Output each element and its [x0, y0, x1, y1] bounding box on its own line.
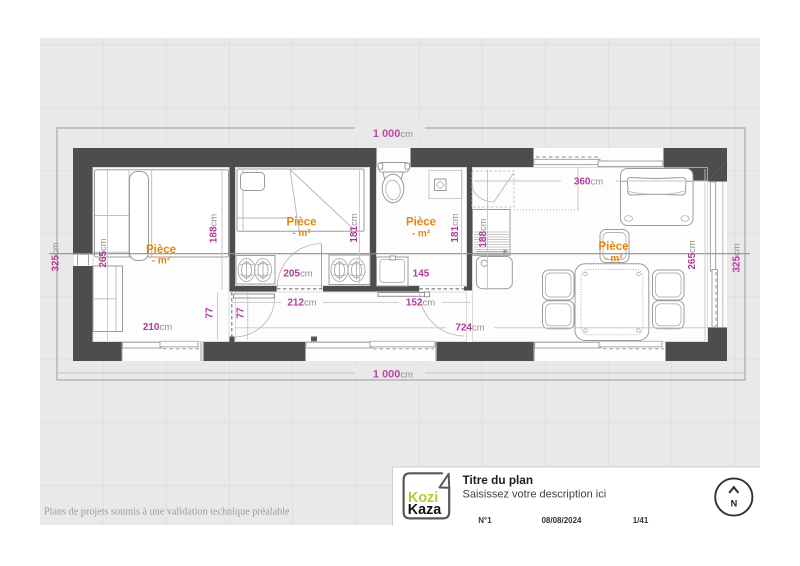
svg-text:- m²: - m² — [412, 229, 431, 240]
svg-text:Titre du plan: Titre du plan — [463, 473, 534, 487]
svg-text:77: 77 — [205, 307, 216, 319]
svg-text:188cm: 188cm — [478, 218, 489, 247]
svg-text:265cm: 265cm — [687, 240, 698, 269]
svg-text:Plans de projets soumis à une: Plans de projets soumis à une validation… — [44, 507, 290, 518]
svg-text:Saisissez votre description ic: Saisissez votre description ici — [463, 489, 607, 501]
svg-text:08/08/2024: 08/08/2024 — [541, 516, 582, 525]
svg-text:Pièce: Pièce — [406, 217, 436, 229]
svg-text:152cm: 152cm — [406, 298, 435, 309]
svg-text:Pièce: Pièce — [598, 241, 628, 253]
svg-text:1 000cm: 1 000cm — [373, 369, 413, 381]
svg-text:212cm: 212cm — [287, 298, 316, 309]
svg-text:1 000cm: 1 000cm — [373, 128, 413, 140]
svg-text:360cm: 360cm — [574, 177, 603, 188]
svg-text:1/41: 1/41 — [633, 516, 649, 525]
svg-text:188cm: 188cm — [209, 214, 220, 243]
svg-text:205cm: 205cm — [283, 269, 312, 280]
svg-text:724cm: 724cm — [455, 323, 484, 334]
svg-text:N: N — [731, 498, 738, 508]
svg-text:181cm: 181cm — [450, 213, 461, 242]
svg-text:265cm: 265cm — [98, 238, 109, 267]
svg-text:77: 77 — [236, 307, 247, 319]
svg-text:N°1: N°1 — [478, 516, 492, 525]
svg-text:Kaza: Kaza — [408, 502, 442, 518]
svg-text:210cm: 210cm — [143, 322, 172, 333]
svg-text:- m²: - m² — [292, 228, 311, 239]
svg-text:Pièce: Pièce — [286, 217, 316, 229]
svg-text:181cm: 181cm — [349, 213, 360, 242]
svg-text:- m²: - m² — [604, 254, 623, 265]
svg-text:145: 145 — [413, 269, 430, 280]
svg-text:325cm: 325cm — [732, 243, 743, 272]
svg-text:Pièce: Pièce — [146, 244, 176, 256]
svg-text:325cm: 325cm — [51, 242, 62, 271]
svg-text:- m²: - m² — [152, 256, 171, 267]
